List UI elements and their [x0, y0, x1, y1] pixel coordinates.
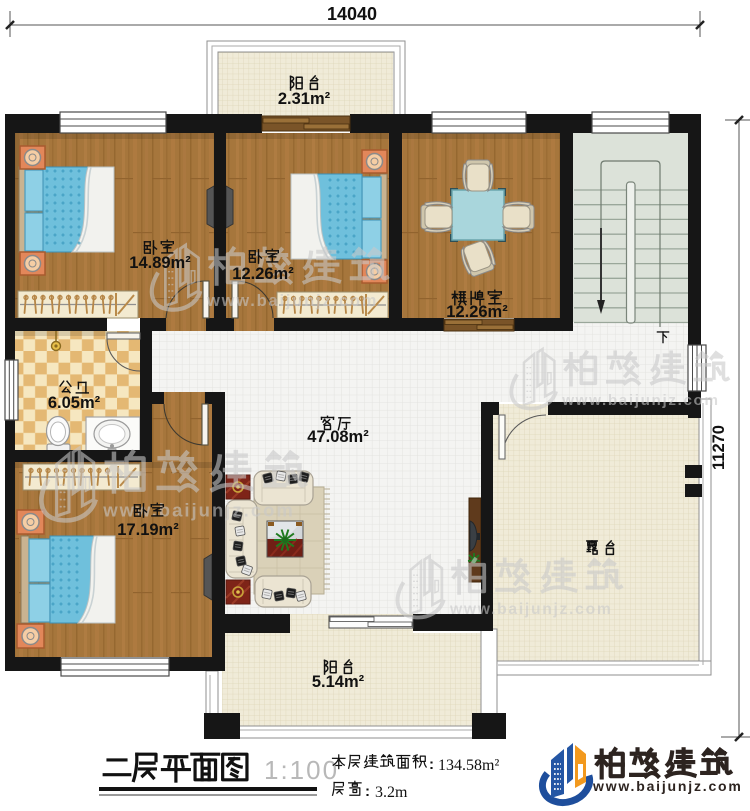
svg-text:2.31m²: 2.31m² [278, 90, 331, 108]
svg-text:14040: 14040 [327, 4, 377, 24]
svg-text:12.26m²: 12.26m² [446, 303, 508, 321]
svg-text:www.baijunjz.com: www.baijunjz.com [449, 601, 612, 618]
svg-text:17.19m²: 17.19m² [117, 521, 179, 539]
svg-text:1:100: 1:100 [264, 755, 339, 785]
svg-text:www.baijunjz.com: www.baijunjz.com [561, 392, 719, 409]
svg-text::: : [365, 783, 370, 800]
svg-text:3.2m: 3.2m [375, 784, 408, 801]
svg-text:www.baijunjz.com: www.baijunjz.com [206, 292, 378, 310]
svg-text:134.58m²: 134.58m² [438, 757, 499, 774]
svg-text:14.89m²: 14.89m² [129, 254, 191, 272]
svg-text::: : [429, 756, 434, 773]
svg-text:11270: 11270 [710, 425, 728, 470]
svg-text:6.05m²: 6.05m² [48, 394, 101, 412]
svg-text:12.26m²: 12.26m² [232, 265, 294, 283]
svg-text:www.baijunjz.com: www.baijunjz.com [592, 778, 743, 794]
svg-text:47.08m²: 47.08m² [307, 428, 369, 446]
svg-text:5.14m²: 5.14m² [312, 673, 365, 691]
svg-text:www.baijunjz.com: www.baijunjz.com [102, 499, 295, 520]
